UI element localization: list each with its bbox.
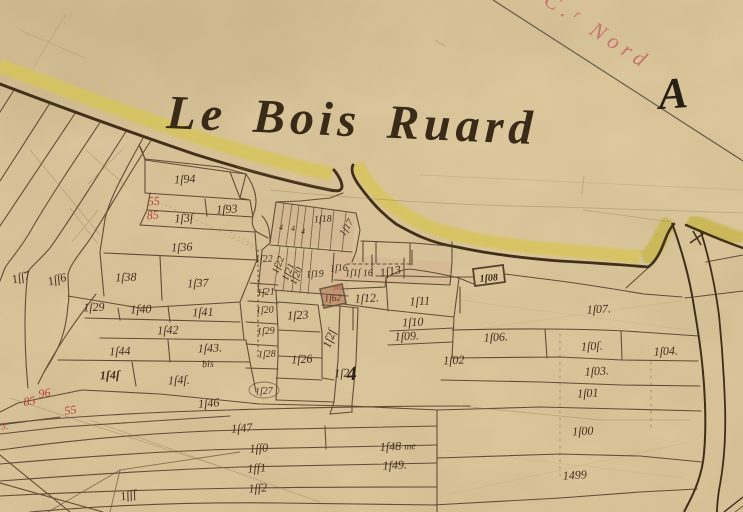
svg-text:A: A [654,68,690,119]
svg-text:1ſſ1: 1ſſ1 [247,460,267,475]
svg-text:1ſ46: 1ſ46 [198,395,220,410]
svg-text:1ſ48 me: 1ſ48 me [379,438,416,454]
svg-text:1ſ49.: 1ſ49. [382,457,407,472]
svg-text:1ſ26: 1ſ26 [291,351,313,366]
svg-text:1ſ12.: 1ſ12. [354,290,379,305]
svg-text:1ſſ0: 1ſſ0 [249,440,269,455]
svg-text:1ſ62: 1ſ62 [324,292,342,304]
svg-text:1ſ00: 1ſ00 [572,423,594,438]
svg-text:1ſ47: 1ſ47 [231,420,254,436]
svg-text:1ſ07.: 1ſ07. [586,301,611,316]
svg-text:1ſ4ſ: 1ſ4ſ [100,368,121,383]
svg-text:1ſ01: 1ſ01 [577,385,599,400]
svg-text:1ſ43.: 1ſ43. [197,341,222,356]
svg-text:1ſ3ſ: 1ſ3ſ [174,210,195,225]
svg-text:3.: 3. [0,421,9,432]
svg-text:1ſ29: 1ſ29 [83,300,105,315]
svg-text:206: 206 [332,286,341,293]
svg-text:1ſ94: 1ſ94 [174,171,196,186]
svg-text:1ſ02: 1ſ02 [443,352,465,367]
svg-text:1ſ06.: 1ſ06. [483,329,508,344]
svg-text:1ſ18: 1ſ18 [314,214,332,226]
svg-text:1ſ04.: 1ſ04. [653,343,678,358]
svg-text:55: 55 [64,402,78,418]
svg-text:1ſ40: 1ſ40 [130,302,152,317]
svg-text:1ſ44: 1ſ44 [109,344,131,359]
svg-text:85: 85 [146,208,159,223]
svg-text:4: 4 [301,227,305,236]
svg-text:1ſ29: 1ſ29 [257,326,275,338]
svg-text:4: 4 [279,223,283,232]
svg-text:1ſ0ſ.: 1ſ0ſ. [581,338,603,353]
svg-text:1ſ93: 1ſ93 [216,201,238,216]
svg-text:1ſ1ſ: 1ſ1ſ [345,268,362,280]
svg-text:1ſ23: 1ſ23 [287,307,309,322]
svg-text:1ſ38: 1ſ38 [115,270,137,285]
svg-text:1ſſ2: 1ſſ2 [248,480,268,495]
svg-text:1ſ28: 1ſ28 [258,349,276,361]
svg-text:1499: 1499 [562,467,587,482]
svg-text:1ſ41: 1ſ41 [192,305,214,320]
svg-text:1ſ09.: 1ſ09. [394,328,419,343]
svg-text:4: 4 [291,224,295,233]
svg-text:1ſ21: 1ſ21 [257,287,275,299]
svg-text:1ſ22: 1ſ22 [255,254,273,266]
svg-text:1ſ11: 1ſ11 [409,293,430,308]
svg-text:1ſ20: 1ſ20 [256,305,274,317]
svg-text:bis: bis [202,359,214,370]
svg-text:1ſ03.: 1ſ03. [584,363,609,378]
svg-text:1ſ42: 1ſ42 [157,323,179,338]
svg-text:4: 4 [345,363,357,386]
svg-text:1ſ19: 1ſ19 [306,269,324,281]
svg-text:96: 96 [38,385,52,401]
svg-text:55: 55 [147,194,160,209]
svg-text:1ſ36: 1ſ36 [171,239,193,254]
svg-text:1ſ08: 1ſ08 [479,272,498,285]
svg-text:1ſ10: 1ſ10 [402,314,424,329]
svg-text:85: 85 [23,393,37,409]
svg-text:1ſ37: 1ſ37 [187,276,210,291]
svg-text:1ſ27: 1ſ27 [255,385,274,397]
svg-text:1ſ4ſ.: 1ſ4ſ. [168,373,190,388]
svg-text:16: 16 [363,268,374,280]
